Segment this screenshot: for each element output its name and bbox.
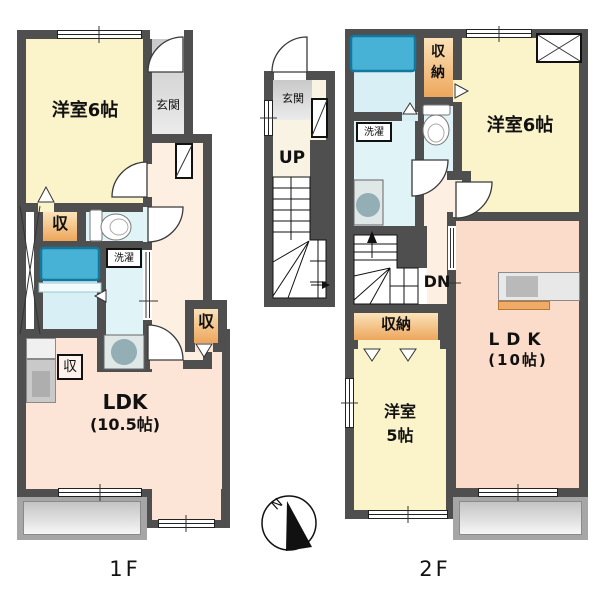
window-yoshitsu6-2f-top: [466, 29, 532, 38]
ldk-2f-size: (10帖): [452, 351, 584, 370]
door-arc-stairwell: [272, 37, 307, 72]
door-opening-closet-top-2f: [453, 80, 462, 102]
label-up: UP: [270, 148, 314, 169]
label-laundry-2f: 洗濯: [356, 122, 392, 142]
window-ldk-1f-bottom: [58, 488, 142, 497]
door-opening-yoshitsu6-2f: [453, 183, 462, 217]
ldk-1f-floor-ext: [152, 489, 221, 520]
label-entrance-1f: 玄関: [145, 98, 191, 113]
kitchen-counter-top-1f: [26, 338, 56, 359]
label-yoshitsu6-1f: 洋室6帖: [25, 100, 145, 123]
door-opening-yoshitsu6-1f: [143, 164, 152, 197]
stairs-2f-wall-jog: [397, 226, 427, 268]
door-opening-ldk-1f: [150, 360, 183, 369]
window-ldk-2f-bottom: [478, 488, 558, 497]
pipe-space-box-2f: [536, 33, 582, 63]
window-ldk-ext-1f-bottom: [158, 519, 215, 528]
entrance-1f: [143, 30, 193, 143]
ldk-2f-name: LDK: [452, 330, 584, 351]
door-opening-toilet-2f: [416, 171, 447, 180]
sliding-door-corridor-1f: [143, 250, 152, 320]
window-yoshitsu6-1f-top: [57, 30, 142, 39]
balcony-1f-deck: [23, 501, 141, 535]
kitchen-strip-2f: [498, 301, 550, 310]
door-opening-closet-mid-2f: [358, 340, 440, 349]
door-opening-stairwell: [274, 71, 306, 80]
label-floor-2f: 2F: [400, 556, 470, 582]
stair-floor-b: [310, 240, 326, 298]
label-yoshitsu5-2f: 洋室 5帖: [358, 400, 442, 448]
label-yoshitsu6-2f: 洋室6帖: [455, 115, 585, 138]
label-entrance-stairwell: 玄関: [272, 92, 314, 106]
label-ldk-1f: LDK (10.5帖): [50, 390, 200, 435]
kitchen-sink-1f: [32, 371, 50, 397]
window-yoshitsu5-2f-bottom: [368, 510, 448, 519]
door-opening-closet-hall-1f: [195, 343, 213, 352]
window-yoshitsu5-2f-left: [345, 378, 354, 428]
door-opening-bath-2f: [402, 112, 418, 121]
toilet-room-2f: [415, 97, 462, 180]
label-laundry-1f: 洗濯: [106, 248, 142, 268]
kitchen-sink-2f: [506, 276, 538, 297]
sliding-door-ldk-2f: [448, 226, 456, 270]
label-ldk-2f: LDK (10帖): [452, 330, 584, 370]
stair-floor-a: [273, 177, 310, 298]
label-floor-1f: 1F: [90, 556, 160, 582]
ldk-1f-size: (10.5帖): [50, 415, 200, 435]
label-closet-hall-1f: 収: [186, 312, 226, 332]
door-opening-entrance-1f: [150, 30, 184, 39]
label-closet-kitchen-1f: 収: [57, 354, 83, 380]
bath-room-2f: [345, 29, 424, 121]
label-closet-top-2f: 収納: [428, 42, 448, 84]
shoe-cabinet-1f: [175, 143, 193, 179]
label-closet-left-1f: 収: [40, 214, 80, 234]
label-dn: DN: [420, 272, 454, 292]
label-closet-mid-2f: 収納: [355, 315, 437, 334]
ldk-1f-name: LDK: [50, 390, 200, 415]
balcony-2f-deck: [459, 501, 582, 535]
bath-room-1f: [34, 241, 106, 338]
door-opening-closet-left-1f: [38, 203, 54, 212]
door-opening-washarea-1f: [143, 207, 152, 242]
label-compass-north: N: [266, 493, 290, 517]
floorplan-canvas: 洋室6帖 玄関 収 洗濯 収 収 LDK (10.5帖) 1F 玄関 UP 洗濯…: [0, 0, 601, 605]
